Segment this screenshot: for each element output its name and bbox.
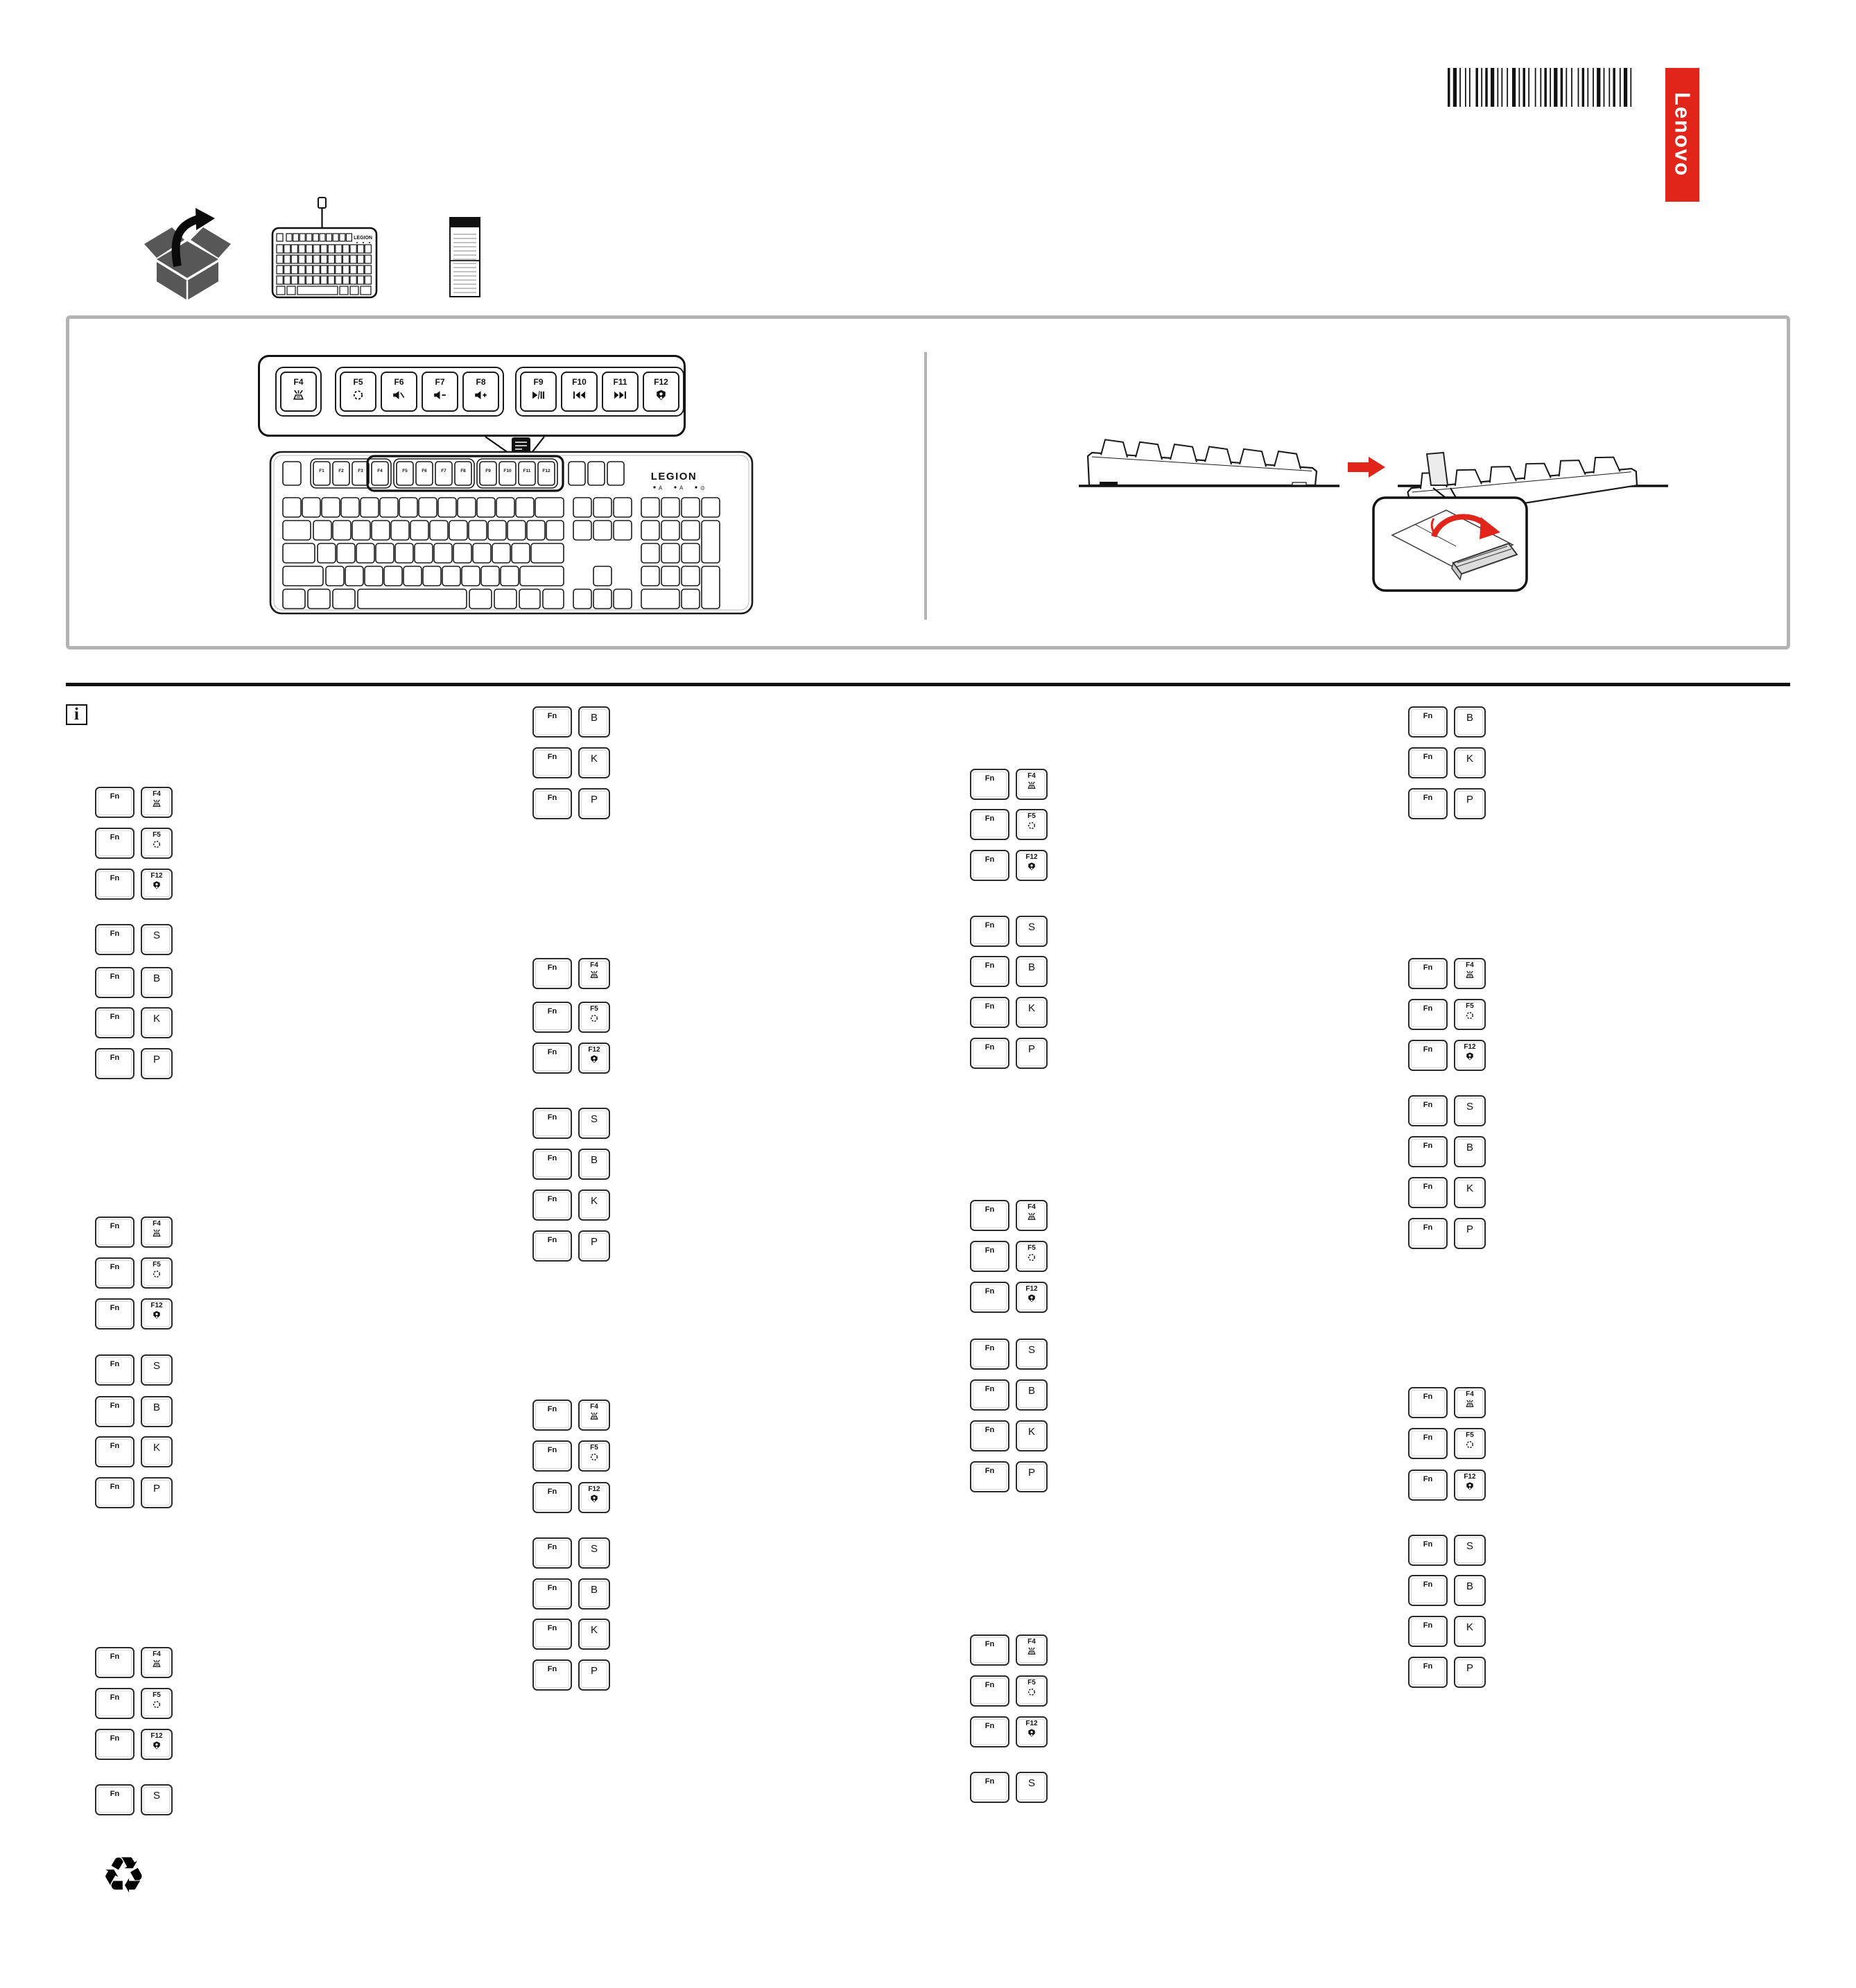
callout-key-f6: F6	[381, 372, 417, 412]
callout-key-f7: F7	[422, 372, 458, 412]
fn-shortcut-pair: FnF5	[970, 1675, 1048, 1707]
fn-key: Fn	[1408, 747, 1448, 778]
barcode	[1448, 68, 1636, 107]
fn-shortcut-pair: FnK	[970, 997, 1048, 1028]
callout-key-label: F12	[654, 378, 668, 387]
backlight-icon	[1465, 970, 1475, 979]
fn-key: Fn	[532, 706, 572, 738]
fn-key: Fn	[532, 1482, 572, 1513]
fn-key-label: Fn	[110, 1305, 119, 1312]
fn-key-label: Fn	[985, 1386, 994, 1393]
callout-cluster: F5F6F7F8	[335, 367, 504, 417]
fn-key: Fn	[970, 1461, 1009, 1492]
shortcut-key-k: K	[1454, 747, 1486, 778]
fn-shortcut-pair: FnP	[532, 1659, 610, 1691]
shortcut-key-p: P	[141, 1048, 173, 1079]
shortcut-key-label: K	[591, 1196, 598, 1207]
fn-key-label: Fn	[985, 1003, 994, 1011]
fn-key-label: Fn	[548, 1008, 557, 1015]
fn-shortcut-pair: FnB	[1408, 1575, 1486, 1606]
legion-logo-icon	[1465, 1481, 1475, 1491]
shortcut-key-f5: F5	[1016, 809, 1048, 840]
fn-key-label: Fn	[110, 875, 119, 882]
shortcut-key-label: B	[1466, 1581, 1473, 1592]
fn-key: Fn	[95, 924, 135, 955]
fn-key: Fn	[95, 1396, 135, 1427]
fn-key-label: Fn	[985, 1778, 994, 1786]
fn-shortcut-pair: FnF4	[532, 958, 610, 989]
shortcut-key-label: B	[1028, 962, 1035, 973]
legion-logo-icon	[1027, 862, 1037, 871]
panel-divider	[924, 352, 927, 620]
fn-key-label: Fn	[985, 1723, 994, 1730]
fn-shortcut-pair: FnF5	[1408, 1428, 1486, 1459]
fn-shortcut-pair: FnF4	[95, 787, 173, 818]
backlight-icon	[152, 1659, 162, 1668]
fn-key: Fn	[95, 1729, 135, 1760]
fn-key-label: Fn	[548, 753, 557, 761]
backlight-icon	[292, 389, 305, 401]
fn-shortcut-pair: FnP	[970, 1038, 1048, 1069]
fn-shortcut-pair: FnF4	[1408, 1387, 1486, 1418]
fn-shortcut-pair: FnK	[532, 1619, 610, 1650]
fn-key-label: Fn	[1423, 1005, 1432, 1013]
document-icon-lines	[453, 231, 476, 293]
shortcut-key-label: P	[1466, 1224, 1473, 1235]
shortcut-key-label: F12	[1025, 1720, 1037, 1727]
shortcut-key-p: P	[141, 1477, 173, 1508]
legion-logo-icon	[1465, 1052, 1475, 1061]
fn-key: Fn	[1408, 1136, 1448, 1167]
shortcut-key-b: B	[141, 1396, 173, 1427]
shortcut-key-label: K	[153, 1442, 160, 1454]
fn-key: Fn	[970, 850, 1009, 881]
fn-key: Fn	[95, 1477, 135, 1508]
svg-text:F8: F8	[460, 469, 466, 473]
shortcut-key-label: S	[1028, 1345, 1035, 1356]
fn-key-label: Fn	[110, 1402, 119, 1410]
fn-shortcut-pair: FnK	[95, 1007, 173, 1038]
shortcut-key-f12: F12	[1016, 1282, 1048, 1313]
fn-key-label: Fn	[110, 1653, 119, 1661]
fn-key-label: Fn	[110, 834, 119, 842]
fn-key: Fn	[532, 1149, 572, 1180]
fn-key-label: Fn	[985, 1247, 994, 1255]
shortcut-key-label: F12	[150, 873, 162, 880]
fn-key: Fn	[95, 1007, 135, 1038]
shortcut-key-label: B	[591, 1155, 598, 1166]
shortcut-key-f5: F5	[578, 1440, 610, 1472]
shortcut-key-p: P	[578, 1230, 610, 1262]
fn-key: Fn	[95, 787, 135, 818]
fn-key-label: Fn	[1423, 1142, 1432, 1150]
callout-key-label: F4	[293, 378, 303, 387]
fn-shortcut-pair: FnP	[1408, 788, 1486, 819]
fn-key-label: Fn	[1423, 1541, 1432, 1549]
callout-key-label: F7	[435, 378, 444, 387]
fn-key-label: Fn	[548, 1666, 557, 1673]
fn-key: Fn	[1408, 1428, 1448, 1459]
shortcut-key-f4: F4	[1016, 769, 1048, 800]
legion-logo-icon	[152, 880, 162, 890]
light-effect-cycle-icon	[1027, 1253, 1037, 1262]
svg-text:F5: F5	[402, 469, 408, 473]
callout-key-f10: F10	[561, 372, 598, 412]
volume-up-icon	[474, 389, 487, 401]
fn-shortcut-pair: FnS	[95, 1784, 173, 1815]
fn-key: Fn	[970, 997, 1009, 1028]
shortcut-key-label: F5	[1466, 1432, 1474, 1439]
shortcut-key-f5: F5	[1016, 1241, 1048, 1272]
fn-shortcut-pair: FnF4	[1408, 958, 1486, 989]
fn-key-label: Fn	[1423, 1581, 1432, 1589]
unbox-icon	[137, 200, 238, 307]
shortcut-key-label: F5	[1027, 1680, 1036, 1686]
shortcut-key-label: P	[1028, 1044, 1035, 1055]
shortcut-key-f12: F12	[1454, 1040, 1486, 1071]
fn-shortcut-pair: FnB	[95, 1396, 173, 1427]
shortcut-key-label: F5	[1027, 1245, 1036, 1252]
shortcut-key-k: K	[578, 1619, 610, 1650]
fn-key: Fn	[95, 1298, 135, 1329]
shortcut-key-f12: F12	[578, 1043, 610, 1074]
light-effect-cycle-icon	[152, 1700, 162, 1709]
shortcut-key-label: S	[153, 930, 160, 941]
light-effect-cycle-icon	[1465, 1440, 1475, 1449]
shortcut-key-label: F4	[1027, 1204, 1036, 1211]
fn-key: Fn	[1408, 958, 1448, 989]
callout-key-f4: F4	[280, 372, 317, 412]
fn-key-label: Fn	[548, 1488, 557, 1496]
shortcut-key-label: F5	[153, 832, 161, 839]
shortcut-key-k: K	[1016, 1420, 1048, 1451]
fn-shortcut-pair: FnP	[1408, 1657, 1486, 1688]
fn-key-label: Fn	[548, 794, 557, 802]
fn-key: Fn	[532, 747, 572, 778]
fn-key: Fn	[95, 869, 135, 900]
svg-text:F3: F3	[358, 469, 363, 473]
fn-key: Fn	[1408, 788, 1448, 819]
shortcut-key-p: P	[1016, 1038, 1048, 1069]
shortcut-key-f5: F5	[141, 1688, 173, 1719]
lenovo-logo: Lenovo	[1665, 68, 1699, 202]
shortcut-key-label: F4	[1466, 1391, 1474, 1398]
fn-key-label: Fn	[1423, 753, 1432, 761]
shortcut-key-label: P	[591, 794, 598, 805]
light-effect-cycle-icon	[589, 1452, 599, 1462]
fn-shortcut-pair: FnB	[532, 1149, 610, 1180]
lenovo-logo-text: Lenovo	[1670, 92, 1695, 177]
shortcut-key-label: F5	[1466, 1003, 1474, 1010]
shortcut-key-label: F5	[590, 1006, 598, 1013]
fn-key: Fn	[532, 1230, 572, 1262]
fn-key-label: Fn	[110, 1735, 119, 1743]
shortcut-key-label: S	[1466, 1101, 1473, 1113]
fn-key: Fn	[95, 828, 135, 859]
fn-shortcut-pair: FnF12	[95, 1729, 173, 1760]
shortcut-key-f4: F4	[1454, 1387, 1486, 1418]
fn-shortcut-pair: FnK	[1408, 1177, 1486, 1208]
fn-key: Fn	[970, 809, 1009, 840]
page-root: { "branding": {"lenovo_logo_text": "Leno…	[0, 0, 1856, 1988]
legion-logo-icon	[589, 1054, 599, 1064]
fn-shortcut-pair: FnF12	[1408, 1470, 1486, 1501]
shortcut-key-label: F12	[1025, 1286, 1037, 1293]
backlight-icon	[1027, 1212, 1037, 1221]
shortcut-key-s: S	[141, 924, 173, 955]
fn-key-label: Fn	[985, 1044, 994, 1052]
shortcut-key-label: F12	[1025, 854, 1037, 861]
fn-key: Fn	[970, 1379, 1009, 1411]
shortcut-key-label: B	[1028, 1386, 1035, 1397]
fn-shortcut-pair: FnP	[95, 1477, 173, 1508]
shortcut-key-label: S	[1028, 1778, 1035, 1789]
shortcut-key-b: B	[1454, 1136, 1486, 1167]
shortcut-key-f12: F12	[141, 869, 173, 900]
fn-key: Fn	[970, 1716, 1009, 1747]
fn-key: Fn	[95, 1647, 135, 1678]
function-key-callout: F4 F5F6F7F8 F9F10F11F12	[258, 355, 686, 437]
shortcut-key-b: B	[1454, 706, 1486, 738]
shortcut-key-label: K	[1466, 1183, 1473, 1194]
fn-key: Fn	[1408, 1535, 1448, 1566]
fn-key-label: Fn	[1423, 1663, 1432, 1671]
fn-key-label: Fn	[110, 793, 119, 801]
fn-key: Fn	[95, 1257, 135, 1289]
svg-text:F2: F2	[338, 469, 344, 473]
shortcut-key-p: P	[1454, 1218, 1486, 1249]
fn-key-label: Fn	[985, 1641, 994, 1648]
fn-key: Fn	[532, 1002, 572, 1033]
fn-key-label: Fn	[985, 815, 994, 823]
fn-shortcut-pair: FnF12	[532, 1482, 610, 1513]
fn-key: Fn	[1408, 1470, 1448, 1501]
shortcut-key-label: K	[1028, 1003, 1035, 1014]
shortcut-key-label: K	[1466, 753, 1473, 765]
svg-text:F7: F7	[441, 469, 446, 473]
fn-key: Fn	[95, 1217, 135, 1248]
fn-shortcut-pair: FnS	[532, 1108, 610, 1139]
fn-shortcut-pair: FnP	[970, 1461, 1048, 1492]
fn-shortcut-pair: FnF12	[532, 1043, 610, 1074]
fn-key: Fn	[532, 1108, 572, 1139]
legion-logo-icon	[1027, 1293, 1037, 1303]
fn-shortcut-pair: FnF5	[95, 1257, 173, 1289]
fn-key: Fn	[970, 956, 1009, 987]
fn-shortcut-pair: FnS	[970, 1772, 1048, 1803]
fn-key-label: Fn	[1423, 1046, 1432, 1054]
light-effect-cycle-icon	[1027, 821, 1037, 830]
shortcut-key-label: F12	[588, 1486, 600, 1493]
backlight-icon	[1027, 781, 1037, 790]
shortcut-key-p: P	[578, 1659, 610, 1691]
fn-shortcut-pair: FnS	[532, 1537, 610, 1569]
fn-shortcut-pair: FnF4	[95, 1217, 173, 1248]
fn-shortcut-pair: FnF5	[95, 1688, 173, 1719]
shortcut-key-b: B	[578, 706, 610, 738]
svg-text:F9: F9	[485, 469, 491, 473]
svg-text:LEGION: LEGION	[651, 471, 697, 482]
fn-key-label: Fn	[985, 1345, 994, 1352]
shortcut-key-f5: F5	[1454, 1428, 1486, 1459]
svg-text:F10: F10	[503, 469, 512, 473]
shortcut-key-f4: F4	[578, 958, 610, 989]
fn-key: Fn	[1408, 1095, 1448, 1126]
fn-key: Fn	[532, 1659, 572, 1691]
fn-key-label: Fn	[985, 856, 994, 864]
fn-key: Fn	[970, 916, 1009, 947]
callout-key-label: F5	[353, 378, 363, 387]
legion-logo-icon	[152, 1310, 162, 1320]
legion-logo-icon	[654, 389, 668, 401]
shortcut-key-label: F4	[1027, 1639, 1036, 1646]
shortcut-key-label: F5	[590, 1445, 598, 1451]
light-effect-cycle-icon	[589, 1013, 599, 1023]
light-effect-cycle-icon	[152, 1269, 162, 1279]
shortcut-key-label: K	[1028, 1427, 1035, 1438]
shortcut-key-label: F4	[1466, 962, 1474, 969]
fn-key: Fn	[1408, 1657, 1448, 1688]
shortcut-key-f5: F5	[141, 828, 173, 859]
fn-shortcut-pair: FnP	[1408, 1218, 1486, 1249]
fn-shortcut-pair: FnS	[970, 916, 1048, 947]
shortcut-key-f5: F5	[578, 1002, 610, 1033]
callout-key-f5: F5	[340, 372, 376, 412]
fn-key: Fn	[970, 1772, 1009, 1803]
fn-key: Fn	[95, 1784, 135, 1815]
shortcut-key-k: K	[1454, 1177, 1486, 1208]
fn-key-label: Fn	[548, 1237, 557, 1244]
fn-key: Fn	[1408, 1575, 1448, 1606]
backlight-icon	[1465, 1399, 1475, 1409]
fn-key-label: Fn	[548, 1406, 557, 1413]
fn-key: Fn	[970, 1038, 1009, 1069]
fn-key: Fn	[95, 1688, 135, 1719]
shortcut-key-label: B	[153, 1402, 160, 1413]
fn-key-label: Fn	[1423, 1101, 1432, 1109]
shortcut-key-p: P	[578, 788, 610, 819]
fn-key: Fn	[532, 1400, 572, 1431]
fn-key: Fn	[532, 1043, 572, 1074]
shortcut-key-label: K	[591, 1625, 598, 1636]
shortcut-key-label: F5	[153, 1262, 161, 1268]
document-icon	[449, 217, 480, 297]
fn-shortcut-pair: FnF4	[532, 1400, 610, 1431]
mute-icon	[392, 389, 406, 401]
svg-text:⊙: ⊙	[700, 485, 705, 491]
shortcut-key-label: B	[1466, 713, 1473, 724]
fn-key-label: Fn	[110, 1264, 119, 1271]
fn-key-label: Fn	[985, 962, 994, 970]
shortcut-key-label: P	[1028, 1467, 1035, 1479]
fn-key: Fn	[1408, 706, 1448, 738]
fn-shortcut-pair: FnF5	[95, 828, 173, 859]
backlight-icon	[589, 1411, 599, 1421]
shortcut-key-f12: F12	[1016, 1716, 1048, 1747]
fn-key: Fn	[532, 1578, 572, 1610]
light-effect-cycle-icon	[1465, 1011, 1475, 1020]
section-divider-rule	[66, 683, 1790, 686]
shortcut-key-label: K	[591, 753, 598, 765]
fn-key: Fn	[970, 1339, 1009, 1370]
shortcut-key-s: S	[1016, 916, 1048, 947]
fn-key-label: Fn	[548, 964, 557, 972]
fn-key-label: Fn	[548, 1625, 557, 1632]
fn-key: Fn	[532, 788, 572, 819]
fn-shortcut-pair: FnB	[1408, 1136, 1486, 1167]
fn-shortcut-pair: FnK	[532, 747, 610, 778]
shortcut-key-f4: F4	[141, 1217, 173, 1248]
right-arrow-icon	[1348, 457, 1385, 478]
shortcut-key-label: K	[1466, 1622, 1473, 1633]
fn-key: Fn	[95, 1048, 135, 1079]
fn-key-label: Fn	[985, 1682, 994, 1689]
fn-key: Fn	[970, 1634, 1009, 1666]
fn-key-label: Fn	[1423, 713, 1432, 720]
callout-cluster: F4	[275, 367, 322, 417]
shortcut-key-s: S	[1016, 1339, 1048, 1370]
fn-shortcut-pair: FnF5	[1408, 999, 1486, 1030]
svg-text:A: A	[679, 485, 684, 491]
fn-shortcut-pair: FnF12	[95, 869, 173, 900]
shortcut-key-p: P	[1454, 788, 1486, 819]
fn-shortcut-pair: FnF4	[970, 1200, 1048, 1231]
play-pause-icon	[532, 389, 545, 401]
fn-key: Fn	[970, 1241, 1009, 1272]
fn-key-label: Fn	[548, 1544, 557, 1551]
backlight-icon	[152, 1228, 162, 1238]
fn-shortcut-pair: FnF4	[970, 769, 1048, 800]
callout-key-label: F10	[572, 378, 587, 387]
fn-key-label: Fn	[548, 1114, 557, 1122]
fn-key-label: Fn	[548, 1049, 557, 1056]
fn-key: Fn	[532, 1619, 572, 1650]
fn-shortcut-pair: FnB	[970, 1379, 1048, 1411]
shortcut-key-f12: F12	[141, 1298, 173, 1329]
callout-key-label: F6	[394, 378, 404, 387]
shortcut-key-label: F12	[1464, 1044, 1475, 1051]
next-track-icon	[614, 389, 627, 401]
fn-shortcut-pair: FnF12	[1408, 1040, 1486, 1071]
fn-shortcut-pair: FnF5	[532, 1440, 610, 1472]
fn-key: Fn	[1408, 1040, 1448, 1071]
fn-key: Fn	[1408, 1218, 1448, 1249]
backlight-icon	[589, 970, 599, 979]
backlight-icon	[152, 799, 162, 808]
fn-shortcut-pair: FnF5	[970, 809, 1048, 840]
fn-key: Fn	[1408, 999, 1448, 1030]
callout-key-f9: F9	[520, 372, 557, 412]
shortcut-key-f4: F4	[1016, 1200, 1048, 1231]
shortcut-key-label: B	[591, 713, 598, 724]
shortcut-key-f4: F4	[1454, 958, 1486, 989]
fn-key-label: Fn	[110, 973, 119, 981]
shortcut-key-b: B	[578, 1578, 610, 1610]
light-effect-cycle-icon	[352, 389, 365, 401]
shortcut-key-f4: F4	[578, 1400, 610, 1431]
fn-shortcut-pair: FnS	[1408, 1535, 1486, 1566]
fn-key-label: Fn	[1423, 1393, 1432, 1401]
fn-key-label: Fn	[110, 1054, 119, 1062]
fn-key: Fn	[970, 1420, 1009, 1451]
callout-cluster: F9F10F11F12	[515, 367, 684, 417]
fn-shortcut-pair: FnB	[532, 1578, 610, 1610]
shortcut-key-label: F4	[590, 962, 598, 969]
fn-shortcut-pair: FnK	[95, 1436, 173, 1467]
shortcut-key-k: K	[1454, 1616, 1486, 1647]
fn-shortcut-pair: FnF12	[95, 1298, 173, 1329]
fn-key-label: Fn	[110, 1790, 119, 1798]
